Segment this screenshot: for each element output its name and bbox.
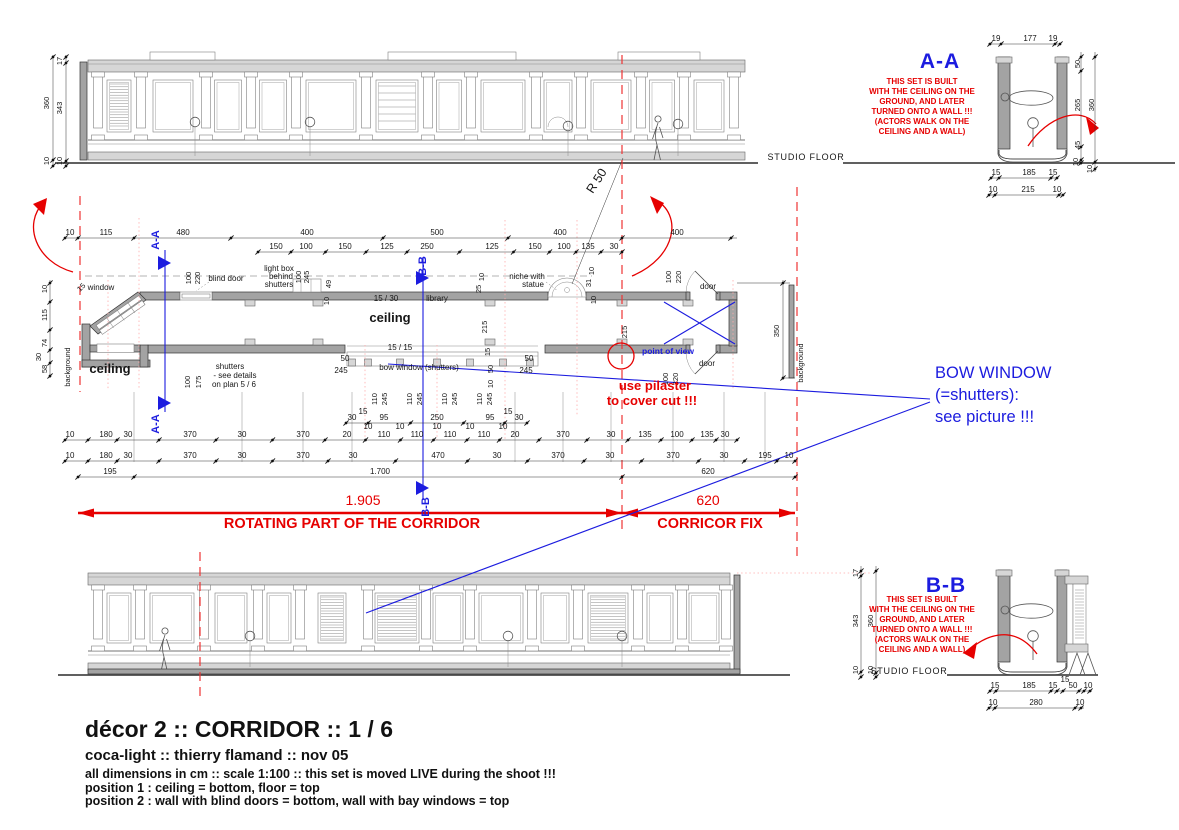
dimension-label: 15: [1049, 681, 1058, 690]
title-block: décor 2 :: CORRIDOR :: 1 / 6 coca-light …: [85, 716, 556, 809]
plan-label: 245: [334, 366, 348, 375]
dimension-label: 10: [396, 422, 405, 431]
plan-label: statue: [522, 280, 544, 289]
dimension-label: 125: [485, 242, 499, 251]
dimension-label: 95: [380, 413, 389, 422]
dimension-label: 58: [40, 365, 49, 373]
dimension-label: 17: [851, 569, 860, 577]
dimension-label: 400: [553, 228, 567, 237]
dimension-label: 250: [420, 242, 434, 251]
dimension-label: 185: [1022, 168, 1036, 177]
bow-window-note: BOW WINDOW: [935, 364, 1052, 382]
bottom-elevation: [88, 573, 740, 674]
dimension-label: 10: [42, 157, 51, 165]
plan-label: ceiling: [89, 361, 130, 376]
dimension-label: 195: [103, 467, 117, 476]
dimension-label: 30: [124, 430, 133, 439]
dimension-label: 370: [183, 451, 197, 460]
cut-line-label-aa: A-A: [150, 414, 162, 434]
dimension-label: 10: [433, 422, 442, 431]
drawing-subtitle: coca-light :: thierry flamand :: nov 05: [85, 747, 556, 764]
dimension-label: 470: [431, 451, 445, 460]
dimension-label: 10: [1084, 681, 1093, 690]
plan-label: shutters: [216, 362, 244, 371]
dimension-label: 177: [1023, 34, 1037, 43]
section-note-line: CEILING AND A WALL): [879, 645, 966, 654]
blueprint-canvas: 1011548040050040040015010015012525012515…: [0, 0, 1179, 830]
cut-line-label-bb: B-B: [417, 256, 429, 276]
dimension-label: 30: [607, 430, 616, 439]
dimension-label: 400: [670, 228, 684, 237]
dimension-label: 1.700: [370, 467, 391, 476]
pilaster-note: to cover cut !!!: [607, 393, 697, 408]
dimension-label: 250: [430, 413, 444, 422]
dimension-label: 150: [528, 242, 542, 251]
plan-label: 50: [341, 354, 350, 363]
dimension-label: 400: [300, 228, 314, 237]
dimension-label: 30: [348, 413, 357, 422]
dimension-label: 74: [40, 339, 49, 347]
dimension-label: 245: [415, 393, 424, 406]
studio-floor-label: STUDIO FLOOR: [767, 152, 844, 162]
dimension-label: 100: [664, 271, 673, 284]
dimension-label: 10: [466, 422, 475, 431]
corridor-fix-label: CORRICOR FIX: [657, 516, 763, 532]
dimension-label: 110: [378, 430, 391, 439]
section-note-line: GROUND, AND LATER: [879, 615, 965, 624]
dimension-label: 10: [1085, 165, 1094, 173]
dimension-label: 20: [511, 430, 520, 439]
dimension-label: 30: [721, 430, 730, 439]
rotating-part-label: ROTATING PART OF THE CORRIDOR: [224, 516, 481, 532]
dimension-label: 350: [772, 325, 781, 338]
pilaster-note: use pilaster: [619, 378, 691, 393]
plan-label: door: [700, 282, 716, 291]
drawing-title: décor 2 :: CORRIDOR :: 1 / 6: [85, 716, 556, 743]
dimension-label: 360: [1087, 99, 1096, 112]
dimension-label: 370: [556, 430, 570, 439]
dimension-label: 30: [493, 451, 502, 460]
dimension-label: 220: [193, 272, 202, 285]
dimension-label: 10: [785, 451, 794, 460]
plan-label: library: [426, 294, 448, 303]
dimension-label: 115: [40, 309, 49, 321]
dimension-label: 30: [238, 451, 247, 460]
dimension-label: 115: [100, 228, 113, 237]
dimension-label: 100: [670, 430, 684, 439]
dimension-label: 15: [483, 348, 492, 356]
dimension-label: 10: [477, 273, 486, 281]
studio-floor-label: STUDIO FLOOR: [870, 666, 947, 676]
dimension-label: 150: [338, 242, 352, 251]
dimension-label: 45: [1073, 141, 1082, 149]
dimension-label: 110: [370, 393, 379, 405]
dimension-label: 245: [450, 393, 459, 406]
dimension-label: 10: [499, 422, 508, 431]
dimension-label: 185: [1022, 681, 1036, 690]
dimension-label: 10: [989, 698, 998, 707]
dimension-label: 215: [1021, 185, 1035, 194]
dimension-label: 10: [851, 666, 860, 674]
dimension-label: 100: [299, 242, 313, 251]
dimension-label: 30: [606, 451, 615, 460]
dimension-label: 50: [486, 365, 495, 373]
dimension-label: 360: [42, 97, 51, 110]
dimension-label: 10: [66, 451, 75, 460]
dimension-label: 100: [557, 242, 571, 251]
section-note-line: (ACTORS WALK ON THE: [875, 117, 970, 126]
dimension-label: 480: [176, 228, 190, 237]
section-aa: [996, 57, 1069, 162]
section-note-line: GROUND, AND LATER: [879, 97, 965, 106]
dimension-label: 19: [992, 34, 1001, 43]
point-of-view-label: point of view: [642, 346, 694, 356]
dimension-label: 180: [99, 430, 113, 439]
dimension-label: 25: [474, 285, 483, 293]
dimension-label: 10: [1053, 185, 1062, 194]
dimension-label: 10: [989, 185, 998, 194]
dimension-label: 30: [34, 353, 43, 361]
dimension-label: 15: [75, 281, 87, 293]
dimension-label: 370: [296, 451, 310, 460]
dimension-label: 15: [992, 168, 1001, 177]
plan-label: door: [699, 359, 715, 368]
dimension-label: 50: [1073, 60, 1082, 68]
corridor-drawing: 1011548040050040040015010015012525012515…: [0, 0, 1179, 830]
dimension-label: 100: [184, 272, 193, 285]
dimension-label: 620: [701, 467, 715, 476]
section-note-line: CEILING AND A WALL): [879, 127, 966, 136]
dimension-label: 265: [1073, 99, 1082, 112]
dimension-label: 135: [581, 242, 595, 251]
dimension-label: 19: [1049, 34, 1058, 43]
dimension-label: 343: [55, 102, 64, 115]
plan-label: shutters: [265, 280, 293, 289]
plan-label: on plan 5 / 6: [212, 380, 257, 389]
dimension-label: 110: [475, 393, 484, 405]
rotating-dimension: 1.905: [345, 492, 380, 508]
dimension-label: 15: [1049, 168, 1058, 177]
cut-line-label-aa: A-A: [150, 230, 162, 250]
blue-overlays: [158, 250, 930, 613]
dimension-label: 95: [486, 413, 495, 422]
cut-line-label-bb: B-B: [420, 497, 432, 517]
dimension-label: 245: [485, 393, 494, 406]
dimension-label: 50: [1069, 681, 1078, 690]
section-bb: [996, 570, 1096, 675]
top-elevation: [80, 52, 745, 160]
dimension-label: 30: [349, 451, 358, 460]
dimension-label: 280: [1029, 698, 1043, 707]
drawing-note-position2: position 2 : wall with blind doors = bot…: [85, 795, 556, 809]
plan-label: - see details: [213, 371, 256, 380]
dimension-label: 10: [589, 296, 598, 304]
dimension-label: 10: [55, 157, 64, 165]
plan-label: window: [87, 283, 115, 292]
dimension-label: 370: [296, 430, 310, 439]
dimension-label: 343: [851, 615, 860, 628]
dimension-label: 110: [478, 430, 491, 439]
dimension-label: 15: [504, 407, 513, 416]
section-note-line: THIS SET IS BUILT: [887, 595, 958, 604]
dimension-label: background: [63, 347, 72, 386]
dimension-label: 30: [124, 451, 133, 460]
dimension-label: 110: [405, 393, 414, 405]
dimension-label: 30: [238, 430, 247, 439]
section-note-line: (ACTORS WALK ON THE: [875, 635, 970, 644]
dimension-label: 245: [302, 271, 311, 284]
plan-label: blind door: [208, 274, 243, 283]
dimension-label: 245: [380, 393, 389, 406]
dimension-label: 10: [322, 297, 331, 305]
plan-label: 245: [519, 366, 533, 375]
dimension-label: 110: [440, 393, 449, 405]
plan-label: 15 / 30: [374, 294, 399, 303]
dimension-label: 370: [183, 430, 197, 439]
dimension-label: 135: [638, 430, 652, 439]
section-note-line: TURNED ONTO A WALL !!!: [872, 107, 973, 116]
dimension-label: 370: [666, 451, 680, 460]
dimension-label: 370: [551, 451, 565, 460]
dimension-label: 10: [364, 422, 373, 431]
dimension-label: 500: [430, 228, 444, 237]
dimension-label: 10: [66, 228, 75, 237]
dimension-label: 215: [480, 321, 489, 334]
section-bb-title: B-B: [926, 574, 966, 597]
plan-label: 15 / 15: [388, 343, 413, 352]
drawing-note-scale: all dimensions in cm :: scale 1:100 :: t…: [85, 768, 556, 782]
section-aa-title: A-A: [920, 50, 960, 73]
dimension-label: 110: [411, 430, 424, 439]
plan-label: R 50: [584, 166, 610, 196]
fix-dimension: 620: [696, 492, 720, 508]
dimension-label: 49: [324, 280, 333, 288]
dimension-label: 10: [66, 430, 75, 439]
dimension-label: 31: [584, 279, 593, 287]
bay-window-glazing: [96, 295, 146, 335]
dimension-label: 10: [587, 267, 596, 275]
dimension-label: 215: [620, 326, 629, 339]
dimension-label: 180: [99, 451, 113, 460]
bow-window-note: see picture !!!: [935, 408, 1034, 426]
dimension-label: 110: [444, 430, 457, 439]
drawing-note-position1: position 1 : ceiling = bottom, floor = t…: [85, 782, 556, 796]
dimension-label: 195: [758, 451, 772, 460]
section-note-line: WITH THE CEILING ON THE: [869, 87, 975, 96]
dimension-label: 10: [40, 285, 49, 293]
plan-label: ceiling: [369, 310, 410, 325]
dimension-label: 150: [269, 242, 283, 251]
dimension-label: 135: [700, 430, 714, 439]
bow-window-note: (=shutters):: [935, 386, 1019, 404]
dimension-label: 15: [991, 681, 1000, 690]
plan-label: 50: [525, 354, 534, 363]
dimension-label: 10: [1076, 698, 1085, 707]
dimension-label: 10: [1071, 158, 1080, 166]
dimension-label: 17: [55, 57, 64, 65]
dimension-label: 175: [194, 376, 203, 389]
dimension-label: 30: [720, 451, 729, 460]
section-note-line: WITH THE CEILING ON THE: [869, 605, 975, 614]
dimension-label: 125: [380, 242, 394, 251]
dimension-label: 30: [610, 242, 619, 251]
dimension-label: 220: [674, 271, 683, 284]
plan-label: bow window (shutters): [379, 363, 459, 372]
dimension-label: 20: [343, 430, 352, 439]
dimension-label: 100: [183, 376, 192, 389]
dimension-label: background: [796, 343, 805, 382]
section-note-line: THIS SET IS BUILT: [887, 77, 958, 86]
section-note-line: TURNED ONTO A WALL !!!: [872, 625, 973, 634]
dimension-label: 15: [359, 407, 368, 416]
dimension-label: 10: [486, 380, 495, 388]
dimension-label: 30: [515, 413, 524, 422]
dimension-label: 15: [1061, 675, 1070, 684]
